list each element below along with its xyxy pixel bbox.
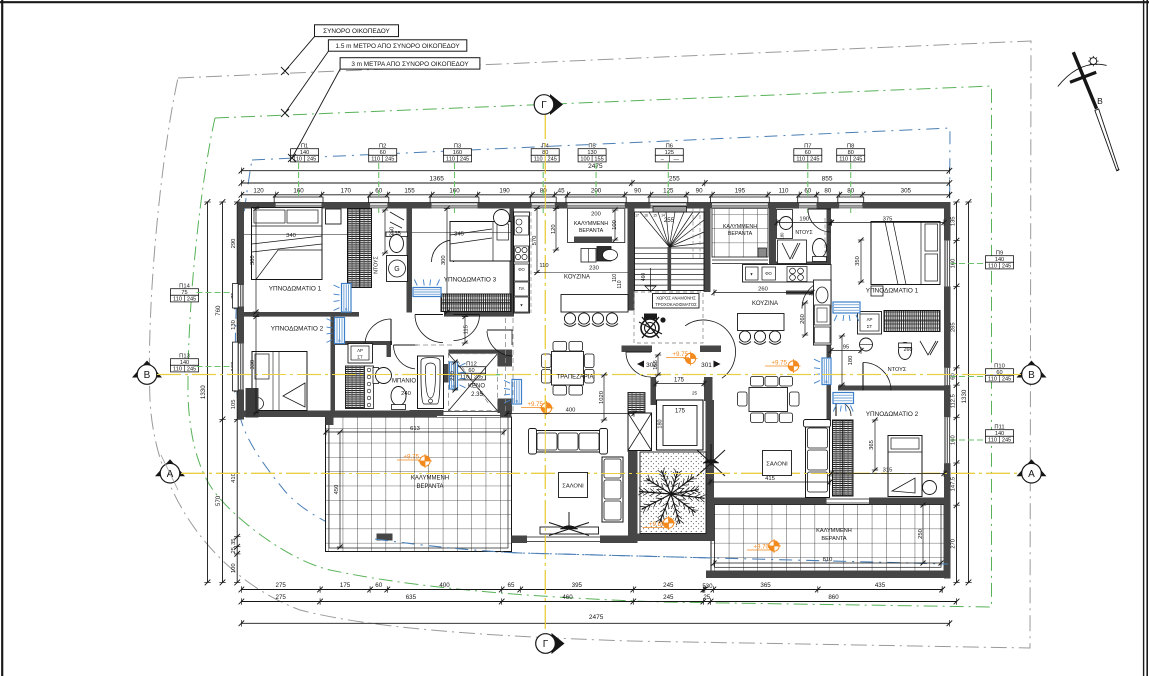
svg-text:ΣΤ: ΣΤ (357, 355, 363, 360)
svg-text:460: 460 (641, 273, 647, 282)
svg-text:400: 400 (566, 407, 576, 413)
svg-text:110: 110 (173, 367, 182, 373)
svg-text:175: 175 (674, 378, 685, 384)
svg-text:230: 230 (589, 266, 599, 272)
svg-text:110: 110 (371, 157, 380, 163)
svg-text:130: 130 (231, 320, 237, 330)
svg-text:305: 305 (901, 188, 912, 195)
svg-text:155: 155 (594, 157, 603, 163)
svg-text:245: 245 (307, 157, 316, 163)
svg-text:—: — (674, 157, 680, 163)
svg-text:245: 245 (385, 157, 394, 163)
svg-text:120: 120 (551, 224, 557, 234)
svg-text:110: 110 (446, 157, 455, 163)
svg-text:B: B (345, 307, 348, 312)
svg-text:ΥΠΝΟΔΩΜΑΤΙΟ 1: ΥΠΝΟΔΩΜΑΤΙΟ 1 (269, 286, 322, 293)
svg-text:275: 275 (276, 594, 287, 601)
svg-text:ΣΥΝΟΡΟ ΟΙΚΟΠΕΔΟΥ: ΣΥΝΟΡΟ ΟΙΚΟΠΕΔΟΥ (323, 28, 390, 35)
svg-text:270: 270 (950, 539, 956, 549)
svg-text:365: 365 (760, 582, 771, 589)
svg-text:613: 613 (410, 426, 420, 432)
svg-text:45: 45 (558, 188, 565, 195)
svg-text:ΝΤΟΥΣ: ΝΤΟΥΣ (374, 256, 380, 273)
svg-text:135: 135 (391, 231, 401, 237)
svg-text:B: B (515, 399, 518, 404)
svg-text:180: 180 (658, 419, 664, 428)
svg-text:25: 25 (692, 391, 698, 396)
svg-text:200: 200 (591, 212, 601, 218)
svg-text:ΝΤΟΥΣ: ΝΤΟΥΣ (888, 367, 907, 373)
svg-text:340: 340 (286, 233, 296, 239)
svg-text:330: 330 (250, 360, 256, 370)
svg-text:1020: 1020 (599, 391, 605, 404)
svg-text:245: 245 (460, 157, 469, 163)
svg-text:395: 395 (572, 582, 583, 589)
svg-text:180: 180 (780, 232, 785, 240)
svg-text:65: 65 (508, 582, 515, 589)
svg-text:ΦΟ: ΦΟ (765, 271, 772, 276)
svg-text:760: 760 (215, 305, 222, 316)
svg-text:220: 220 (450, 371, 456, 381)
svg-text:2475: 2475 (589, 614, 604, 621)
svg-text:255: 255 (669, 176, 680, 183)
svg-text:B: B (144, 370, 151, 381)
svg-text:16: 16 (644, 214, 648, 218)
svg-text:245: 245 (1002, 438, 1011, 444)
svg-text:ΦΟ: ΦΟ (518, 267, 525, 272)
svg-text:+9.75: +9.75 (771, 360, 787, 367)
svg-text:ΒΕΡΑΝΤΑ: ΒΕΡΑΝΤΑ (821, 536, 847, 542)
svg-text:240: 240 (401, 391, 411, 397)
svg-text:175: 175 (340, 582, 351, 589)
svg-text:260: 260 (904, 347, 913, 353)
svg-text:ΝΤΟΥΣ: ΝΤΟΥΣ (795, 230, 812, 236)
svg-text:ΚΕΝΟ: ΚΕΝΟ (468, 384, 485, 390)
svg-text:1330: 1330 (961, 389, 968, 403)
svg-text:410: 410 (231, 473, 237, 483)
svg-text:855: 855 (822, 176, 833, 183)
svg-text:115: 115 (464, 325, 470, 334)
svg-text:35: 35 (231, 538, 237, 544)
svg-text:245: 245 (548, 157, 557, 163)
svg-text:B: B (825, 379, 828, 384)
svg-text:810: 810 (823, 557, 833, 563)
svg-text:110: 110 (796, 157, 805, 163)
svg-text:ΥΠΝΟΔΩΜΑΤΙΟ 1: ΥΠΝΟΔΩΜΑΤΙΟ 1 (866, 288, 919, 295)
svg-text:1365: 1365 (429, 176, 444, 183)
svg-text:110: 110 (534, 157, 543, 163)
svg-text:175: 175 (675, 409, 686, 415)
svg-text:260: 260 (800, 314, 806, 324)
svg-text:ΣΑΛΟΝΙ: ΣΑΛΟΝΙ (562, 484, 584, 490)
svg-text:110: 110 (988, 377, 997, 383)
svg-text:110: 110 (293, 157, 302, 163)
svg-text:ΠΛ: ΠΛ (519, 286, 525, 291)
svg-text:245: 245 (810, 157, 819, 163)
svg-text:415: 415 (765, 476, 775, 482)
svg-text:245: 245 (1002, 377, 1011, 383)
svg-text:110: 110 (779, 188, 789, 195)
svg-text:135: 135 (950, 216, 956, 226)
svg-text:245: 245 (663, 582, 674, 589)
svg-text:3 m ΜΕΤΡΑ ΑΠΟ ΣΥΝΟΡΟ ΟΙΚΟΠΕΔΟΥ: 3 m ΜΕΤΡΑ ΑΠΟ ΣΥΝΟΡΟ ΟΙΚΟΠΕΔΟΥ (351, 61, 469, 68)
svg-text:112.5: 112.5 (950, 394, 956, 408)
svg-text:170: 170 (341, 188, 352, 195)
svg-text:255: 255 (664, 217, 675, 224)
svg-text:180: 180 (848, 356, 854, 366)
svg-text:190: 190 (799, 216, 809, 222)
svg-text:90: 90 (696, 188, 703, 195)
svg-text:365: 365 (869, 440, 875, 450)
svg-text:25: 25 (703, 594, 710, 601)
svg-text:ΚΟΥΖΙΝΑ: ΚΟΥΖΙΝΑ (752, 301, 778, 307)
svg-text:195: 195 (735, 188, 746, 195)
svg-text:315: 315 (883, 467, 893, 473)
svg-text:110: 110 (173, 297, 182, 303)
svg-text:ΛΡ: ΛΡ (867, 317, 873, 322)
svg-text:300: 300 (441, 255, 447, 265)
svg-text:ΣΤ: ΣΤ (867, 324, 873, 329)
svg-text:95: 95 (843, 344, 849, 350)
svg-text:17: 17 (635, 214, 639, 218)
svg-text:635: 635 (406, 594, 417, 601)
svg-text:260: 260 (758, 286, 768, 292)
svg-text:110: 110 (988, 438, 997, 444)
svg-text:ΧΩΡΟΣ ΑΝΑΜΟΝΗΣ: ΧΩΡΟΣ ΑΝΑΜΟΝΗΣ (656, 296, 696, 301)
svg-text:ΣΑΛΟΝΙ: ΣΑΛΟΝΙ (766, 462, 788, 468)
svg-text:2.35: 2.35 (471, 392, 483, 398)
svg-text:15: 15 (653, 214, 657, 218)
svg-text:+9.75: +9.75 (403, 454, 419, 461)
svg-text:ΥΠΝΟΔΩΜΑΤΙΟ 2: ΥΠΝΟΔΩΜΑΤΙΟ 2 (866, 411, 919, 418)
svg-text:301: 301 (701, 362, 712, 369)
svg-text:ΥΠΝΟΔΩΜΑΤΙΟ 3: ΥΠΝΟΔΩΜΑΤΙΟ 3 (444, 277, 497, 284)
svg-text:400: 400 (439, 582, 450, 589)
svg-text:G: G (394, 266, 399, 273)
svg-text:14: 14 (661, 214, 665, 218)
svg-text:110: 110 (839, 157, 848, 163)
svg-text:90: 90 (634, 188, 641, 195)
svg-text:245: 245 (1002, 264, 1011, 270)
svg-text:B: B (338, 338, 341, 343)
svg-text:60: 60 (375, 582, 382, 589)
svg-text:290: 290 (231, 239, 237, 249)
svg-text:+9.75: +9.75 (672, 351, 688, 358)
svg-text:350: 350 (855, 256, 861, 266)
svg-text:ΚΟΥΖΙΝΑ: ΚΟΥΖΙΝΑ (564, 275, 590, 281)
svg-text:105: 105 (231, 400, 237, 410)
svg-text:1330: 1330 (200, 385, 207, 399)
svg-text:ΒΕΡΑΝΤΑ: ΒΕΡΑΝΤΑ (416, 484, 443, 490)
svg-text:Γ: Γ (543, 639, 549, 650)
svg-text:375: 375 (883, 216, 893, 222)
svg-text:ΤΡΑΠΕΖΑΡΙΑ: ΤΡΑΠΕΖΑΡΙΑ (557, 375, 594, 381)
svg-text:245: 245 (187, 367, 196, 373)
svg-text:190: 190 (499, 188, 510, 195)
svg-text:ΤΡΟΧΟΚΑΘΙΣΜΑΤΟΣ: ΤΡΟΧΟΚΑΘΙΣΜΑΤΟΣ (655, 302, 697, 307)
svg-text:ΒΕΡΑΝΤΑ: ΒΕΡΑΝΤΑ (579, 228, 604, 234)
svg-text:ΚΑΛΥΜΜΕΝΗ: ΚΑΛΥΜΜΕΝΗ (816, 528, 852, 534)
svg-text:A: A (1028, 469, 1035, 480)
svg-text:30: 30 (706, 583, 713, 590)
svg-text:ΛΡ: ΛΡ (357, 348, 363, 353)
svg-text:B: B (1097, 96, 1103, 106)
svg-text:147.5: 147.5 (950, 477, 956, 492)
svg-text:ΚΑΛΥΜΜΕΝΗ: ΚΑΛΥΜΜΕΝΗ (723, 224, 757, 230)
svg-text:B: B (1028, 370, 1035, 381)
svg-text:Γ: Γ (541, 100, 547, 111)
svg-text:▼: ▼ (520, 303, 524, 308)
svg-text:100: 100 (580, 157, 589, 163)
svg-text:360: 360 (250, 255, 256, 265)
svg-text:▼: ▼ (750, 272, 754, 277)
svg-text:ΚΑΛΥΜΜΕΝΗ: ΚΑΛΥΜΜΕΝΗ (574, 221, 608, 227)
svg-text:ΒΕΡΑΝΤΑ: ΒΕΡΑΝΤΑ (728, 231, 753, 237)
svg-text:+9.70: +9.70 (753, 544, 769, 551)
svg-text:120: 120 (253, 188, 264, 195)
svg-text:275: 275 (276, 582, 287, 589)
svg-text:ΚΑΛΥΜΜΕΝΗ: ΚΑΛΥΜΜΕΝΗ (411, 476, 449, 482)
svg-text:155: 155 (653, 360, 659, 370)
svg-text:110: 110 (988, 264, 997, 270)
svg-text:450: 450 (334, 485, 340, 495)
svg-text:155: 155 (404, 188, 415, 195)
svg-text:110: 110 (539, 263, 548, 269)
svg-text:+9.75: +9.75 (527, 401, 543, 408)
svg-text:435: 435 (875, 582, 886, 589)
svg-text:100: 100 (231, 563, 237, 573)
svg-text:ΜΠΑΝΙΟ: ΜΠΑΝΙΟ (392, 379, 416, 385)
svg-text:110: 110 (612, 274, 618, 282)
svg-text:245: 245 (663, 594, 674, 601)
svg-text:570: 570 (532, 236, 538, 246)
svg-text:460: 460 (562, 594, 573, 601)
svg-text:ΥΠΝΟΔΩΜΑΤΙΟ 2: ΥΠΝΟΔΩΜΑΤΙΟ 2 (271, 326, 324, 333)
svg-text:250: 250 (918, 529, 924, 539)
svg-text:1.5 m ΜΕΤΡΟ ΑΠΟ ΣΥΝΟΡΟ ΟΙΚΟΠΕΔ: 1.5 m ΜΕΤΡΟ ΑΠΟ ΣΥΝΟΡΟ ΟΙΚΟΠΕΔΟΥ (336, 43, 461, 50)
svg-text:245: 245 (853, 157, 862, 163)
svg-text:+9.85: +9.85 (649, 521, 665, 528)
svg-text:570: 570 (215, 495, 222, 506)
svg-text:80: 80 (824, 188, 831, 195)
svg-text:285: 285 (950, 322, 956, 332)
svg-text:25: 25 (231, 547, 237, 553)
svg-text:245: 245 (187, 297, 196, 303)
svg-text:100: 100 (612, 220, 618, 230)
svg-text:860: 860 (828, 594, 839, 601)
